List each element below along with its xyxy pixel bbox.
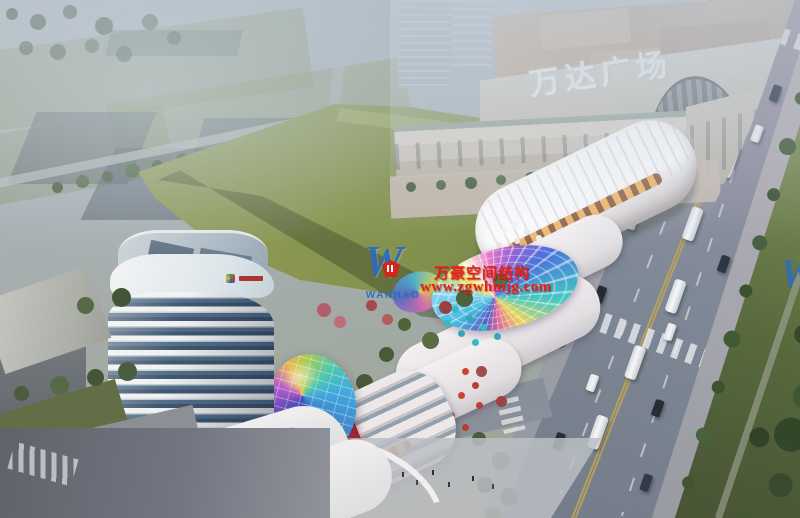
watermark-logo-letter-fragment: W: [780, 250, 800, 297]
tower-logo-wordmark: [239, 276, 263, 281]
watermark-url: www.zgwhmjg.com: [420, 279, 552, 296]
watermark-logo-letter: W: [364, 236, 403, 287]
white-umbrella-cluster: [512, 222, 518, 228]
tree-row: [14, 386, 29, 401]
aerial-architectural-rendering: 万达广场: [0, 0, 800, 518]
building-silhouette: [105, 30, 243, 56]
red-umbrella-cluster: [462, 368, 469, 375]
terrace-tree-cluster: [398, 318, 411, 331]
tree-cluster: [6, 8, 18, 20]
watermark-logo-text: WANHAO: [358, 290, 428, 301]
watermark: W WANHAO 万豪空间结构 www.zgwhmjg.com: [358, 246, 568, 312]
tree-row: [52, 182, 63, 193]
tower-logo-icon: [226, 274, 235, 283]
watermark-shield-glyphs: [387, 265, 395, 272]
